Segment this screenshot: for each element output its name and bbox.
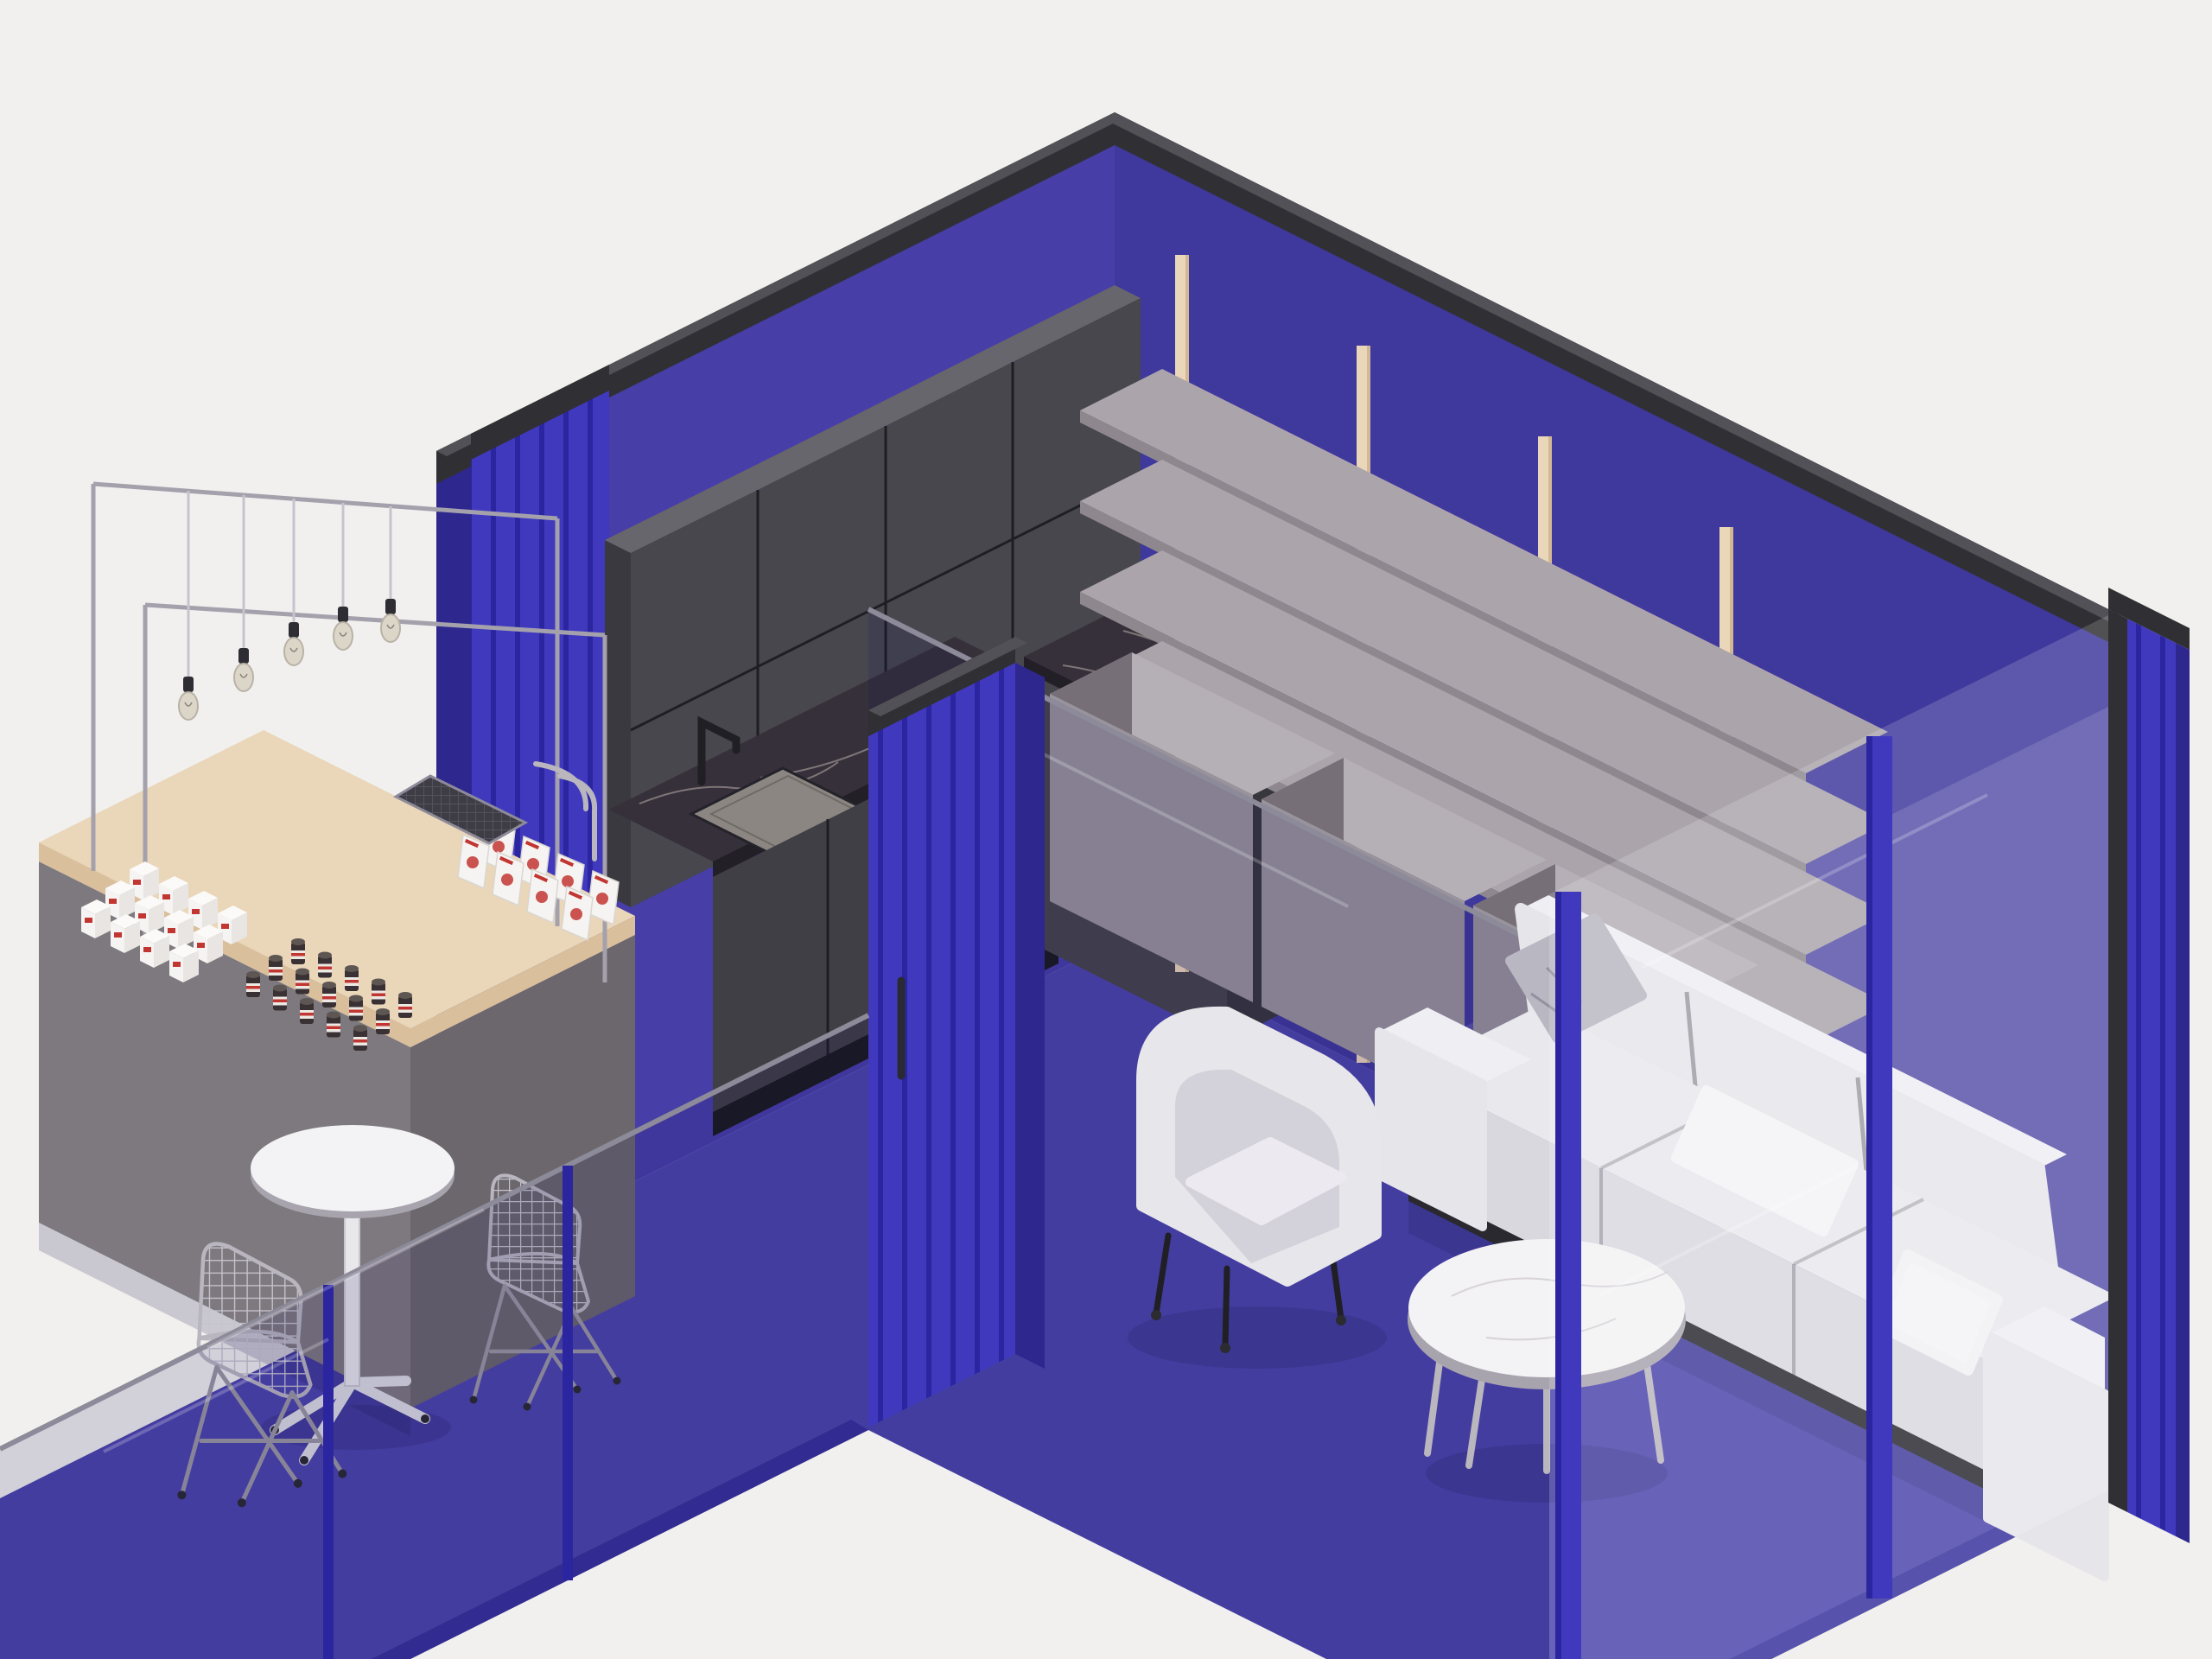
glass-post-2: [563, 1166, 573, 1580]
divider-pillar-face: [868, 663, 1015, 1427]
divider-pillar: [868, 637, 1045, 1427]
divider-pillar-side: [1015, 663, 1045, 1369]
corner-pillar-side: [2176, 643, 2190, 1543]
armchair-shadow: [1128, 1306, 1387, 1369]
cafe-table-top: [251, 1125, 454, 1211]
corner-pillar-assembly: [2108, 588, 2190, 1543]
corner-dark-post: [2108, 609, 2127, 1512]
corner-blue-pillar: [2127, 619, 2176, 1536]
isometric-interior-render: [0, 0, 2212, 1659]
